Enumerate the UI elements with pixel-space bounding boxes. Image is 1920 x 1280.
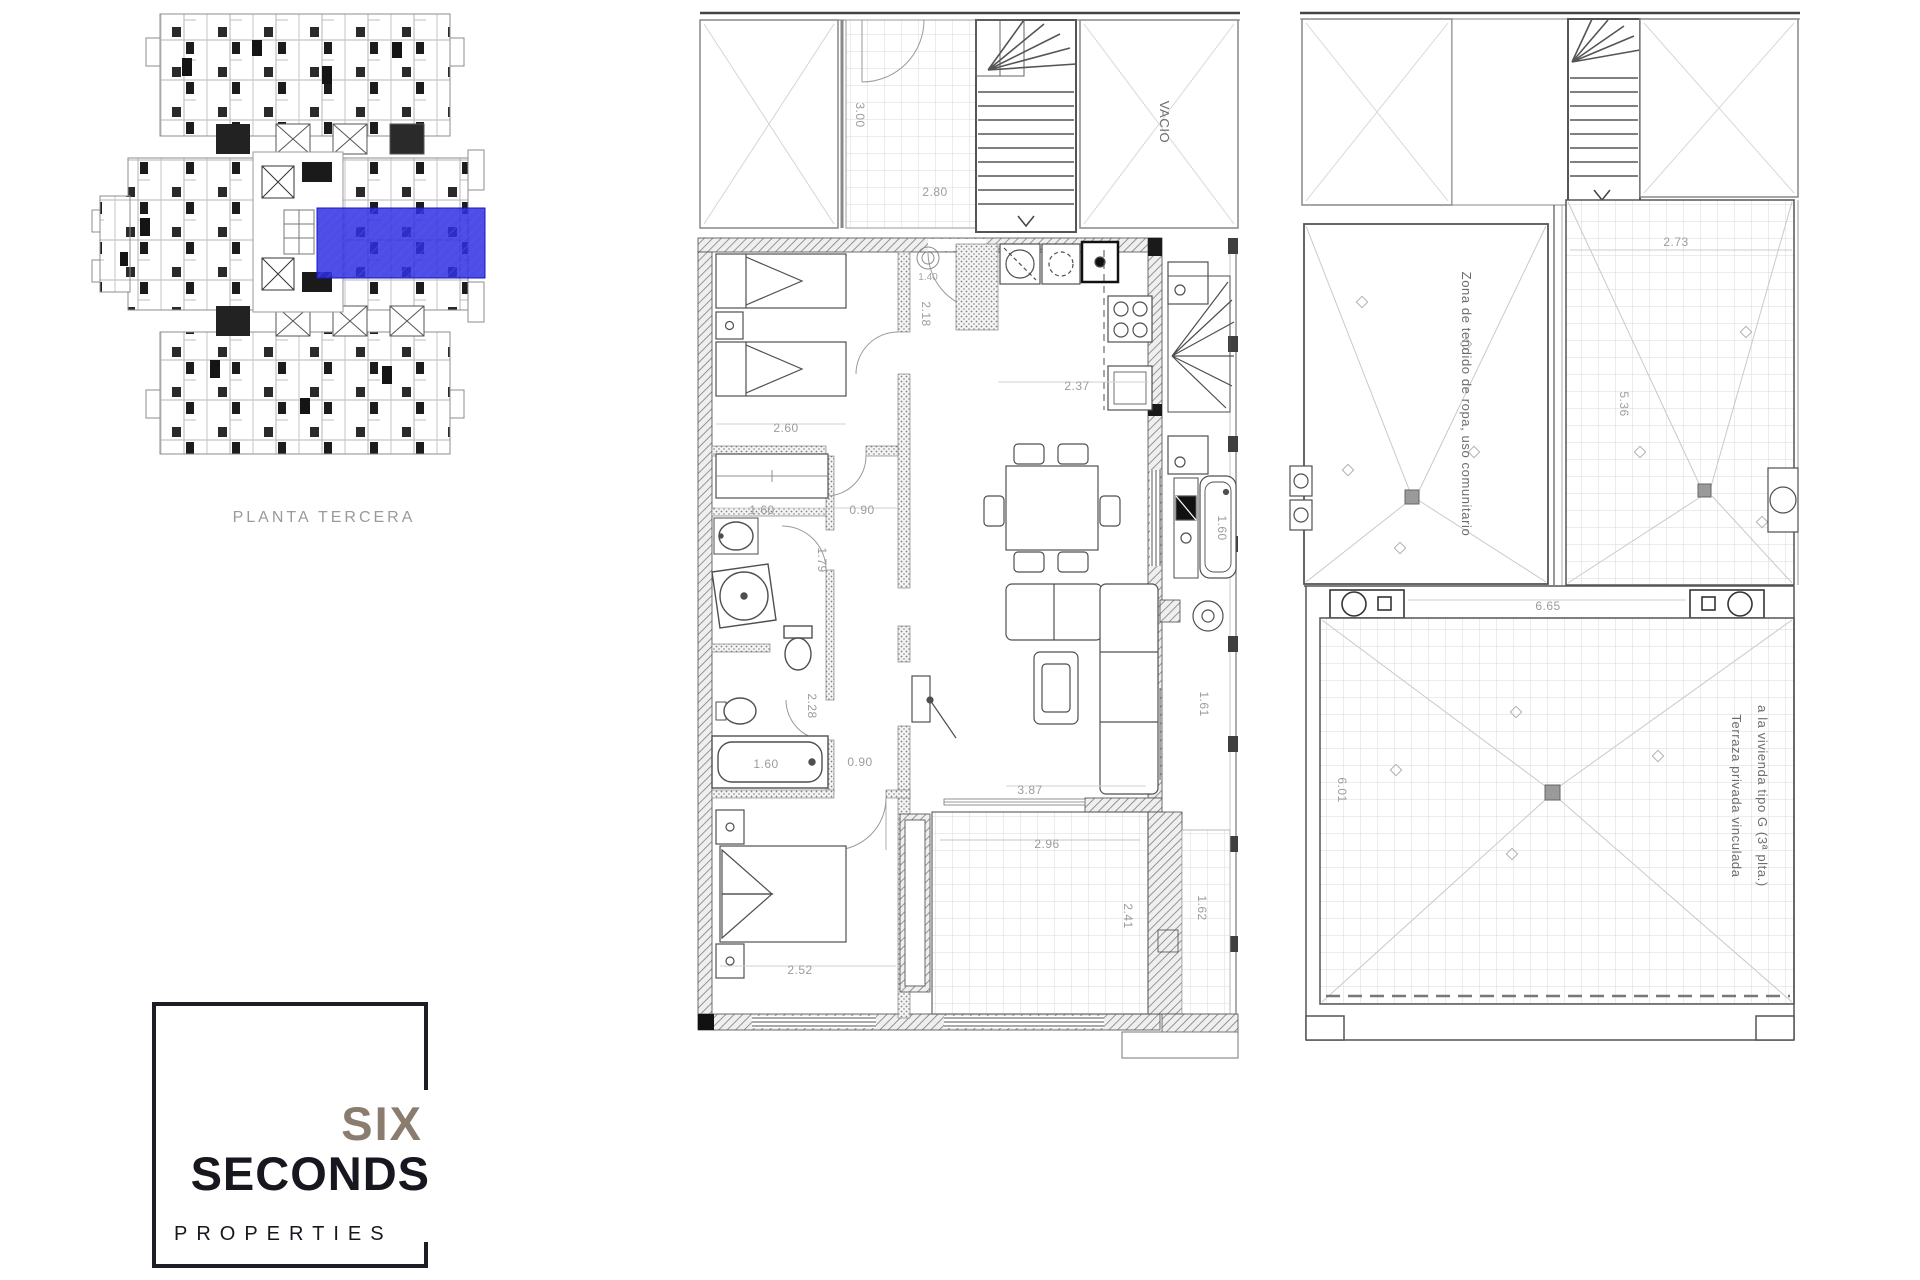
dim-roof-upper-width: 2.73 (1663, 235, 1688, 249)
dim-hall-width: 0.90 (849, 503, 874, 517)
dim-terrace-depth: 2.41 (1121, 903, 1135, 928)
private-terrace-label-1: Terraza privada vinculada (1729, 714, 1744, 877)
dim-terrace-width: 2.96 (1034, 837, 1059, 851)
logo-word-six: SIX (338, 1100, 426, 1147)
overview-plan: PLANTA TERCERA (92, 14, 485, 526)
six-seconds-logo: SIX SECONDS PROPERTIES (152, 1002, 428, 1268)
dim-gallery-sink: 1.60 (1215, 515, 1229, 540)
dim-roof-terrace-width: 6.65 (1535, 599, 1560, 613)
dim-hall-fixture: 1.40 (918, 272, 938, 283)
dim-kitchen-width: 2.37 (1064, 379, 1089, 393)
dim-bath1-depth: 1.79 (815, 547, 829, 572)
dim-living-length: 3.87 (1017, 783, 1042, 797)
dim-gallery-low: 1.62 (1195, 895, 1209, 920)
dim-bed1-door: 2.18 (919, 301, 933, 326)
overview-caption: PLANTA TERCERA (233, 509, 416, 526)
private-terrace-label-2: a la vivienda tipo G (3ª plta.) (1755, 705, 1770, 887)
dim-bath2-depth: 2.28 (805, 693, 819, 718)
void-label: VACIO (1157, 101, 1172, 144)
roof-plan: Zona de tendido de ropa, uso comunitario… (1290, 13, 1800, 1040)
dim-roof-terrace-depth: 6.01 (1335, 777, 1349, 802)
dim-bathtub: 1.60 (753, 757, 778, 771)
dim-lobby-depth: 3.00 (853, 102, 867, 127)
dim-roof-upper-depth: 5.36 (1617, 391, 1631, 416)
logo-word-seconds: SECONDS (189, 1150, 432, 1197)
dim-bed1-width: 2.60 (773, 421, 798, 435)
logo-word-properties: PROPERTIES (174, 1224, 393, 1244)
dim-bath-hall: 0.90 (847, 755, 872, 769)
laundry-zone-label: Zona de tendido de ropa, uso comunitario (1459, 272, 1474, 537)
dim-gallery-mid: 1.61 (1197, 691, 1211, 716)
selected-unit-highlight (317, 208, 485, 278)
dim-lobby-width: 2.80 (922, 185, 947, 199)
dim-wardrobe: 1.60 (749, 503, 774, 517)
dim-bed2-width: 2.52 (787, 963, 812, 977)
floorplan-sheet: PLANTA TERCERA 3.00 2.80 (0, 0, 1920, 1280)
apartment-plan: 3.00 2.80 VACIO (698, 13, 1240, 1058)
